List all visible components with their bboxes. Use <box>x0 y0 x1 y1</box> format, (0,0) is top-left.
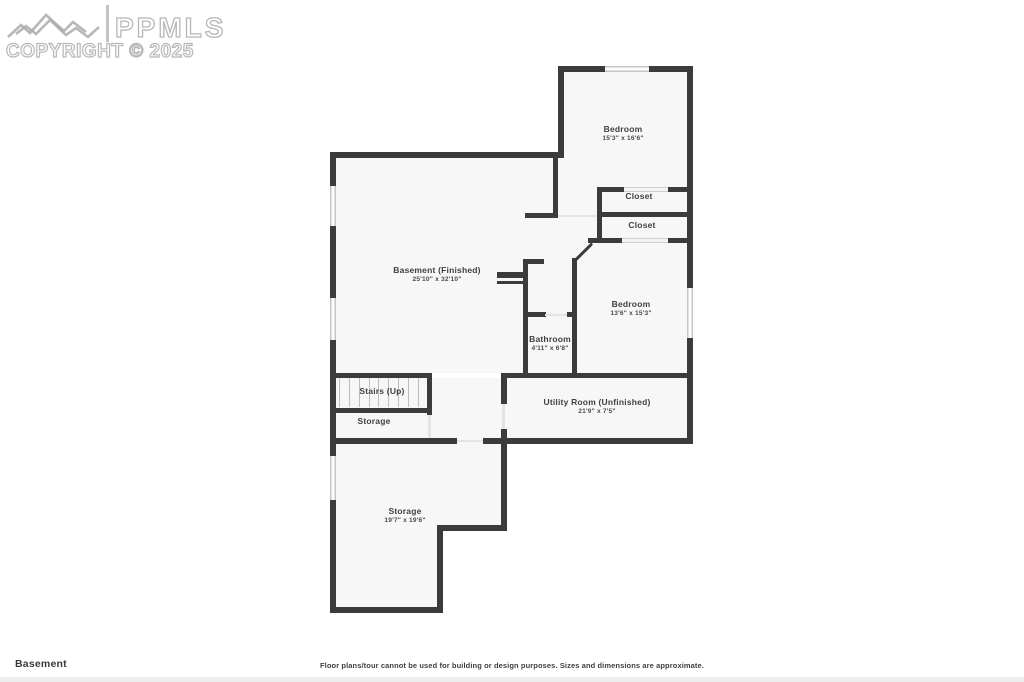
room-name: Utility Room (Unfinished) <box>544 398 651 408</box>
wall <box>523 259 544 264</box>
room-dims: 19'7" x 19'6" <box>384 517 425 526</box>
stair-tread <box>418 378 419 407</box>
wall <box>483 438 693 444</box>
door-opening <box>558 215 597 217</box>
window <box>330 186 336 226</box>
room-label-closet-1: Closet <box>625 192 652 202</box>
room-name: Bathroom <box>529 335 571 345</box>
room-name: Closet <box>628 221 655 231</box>
room-name: Storage <box>357 417 390 427</box>
stair-tread <box>339 378 340 407</box>
room-label-bedroom-1: Bedroom 15'3" x 16'6" <box>602 125 643 143</box>
room-label-storage-large: Storage 19'7" x 19'6" <box>384 507 425 525</box>
window <box>605 66 649 72</box>
logo-text: PPMLS <box>115 14 226 42</box>
wall <box>597 187 624 192</box>
wall <box>497 281 528 284</box>
room-label-storage-small: Storage <box>357 417 390 427</box>
room-name: Storage <box>384 507 425 517</box>
room-dims: 13'6" x 15'3" <box>610 310 651 319</box>
wall <box>567 312 577 317</box>
copyright-text: COPYRIGHT © 2025 <box>6 42 226 61</box>
wall <box>330 607 443 613</box>
wall <box>558 66 564 158</box>
room-label-closet-2: Closet <box>628 221 655 231</box>
wall <box>330 373 432 378</box>
stair-tread <box>408 378 409 407</box>
room-label-stairs: Stairs (Up) <box>359 387 404 397</box>
wall <box>525 213 558 218</box>
room-name: Stairs (Up) <box>359 387 404 397</box>
room-dims: 25'10" x 32'10" <box>393 276 480 285</box>
wall <box>597 212 693 217</box>
floor-area <box>528 263 572 373</box>
wall <box>588 238 622 243</box>
wall <box>330 408 432 413</box>
room-name: Bedroom <box>602 125 643 135</box>
wall <box>497 272 528 278</box>
room-name: Closet <box>625 192 652 202</box>
window <box>687 288 693 338</box>
floor-plan-page: PPMLS COPYRIGHT © 2025 <box>0 0 1024 682</box>
room-label-bedroom-2: Bedroom 13'6" x 15'3" <box>610 300 651 318</box>
window <box>330 298 336 340</box>
disclaimer-text: Floor plans/tour cannot be used for buil… <box>0 661 1024 670</box>
wall <box>501 373 693 378</box>
door-opening <box>545 314 567 316</box>
logo-divider <box>106 5 109 42</box>
room-name: Bedroom <box>610 300 651 310</box>
room-label-bathroom: Bathroom 4'11" x 6'8" <box>529 335 571 353</box>
wall <box>668 187 693 192</box>
room-name: Basement (Finished) <box>393 266 480 276</box>
room-dims: 4'11" x 6'8" <box>529 345 571 354</box>
bottom-strip <box>0 677 1024 682</box>
room-label-utility-room: Utility Room (Unfinished) 21'9" x 7'5" <box>544 398 651 416</box>
floor-area <box>336 531 437 607</box>
window <box>330 456 336 500</box>
stair-tread <box>349 378 350 407</box>
wall <box>501 377 507 404</box>
door-opening <box>457 440 483 442</box>
room-dims: 21'9" x 7'5" <box>544 408 651 417</box>
wall <box>668 238 693 243</box>
door-opening <box>428 415 431 438</box>
wall <box>523 312 546 317</box>
wall <box>437 525 443 613</box>
room-dims: 15'3" x 16'6" <box>602 135 643 144</box>
watermark: PPMLS COPYRIGHT © 2025 <box>6 2 226 61</box>
wall <box>330 438 457 444</box>
wall <box>437 525 507 531</box>
closet-door <box>622 238 668 243</box>
door-opening <box>502 404 505 429</box>
wall <box>687 66 693 443</box>
wall <box>330 152 564 158</box>
mountain-logo-icon <box>6 4 102 42</box>
wall <box>553 152 558 215</box>
wall <box>501 443 507 531</box>
room-label-basement-finished: Basement (Finished) 25'10" x 32'10" <box>393 266 480 284</box>
